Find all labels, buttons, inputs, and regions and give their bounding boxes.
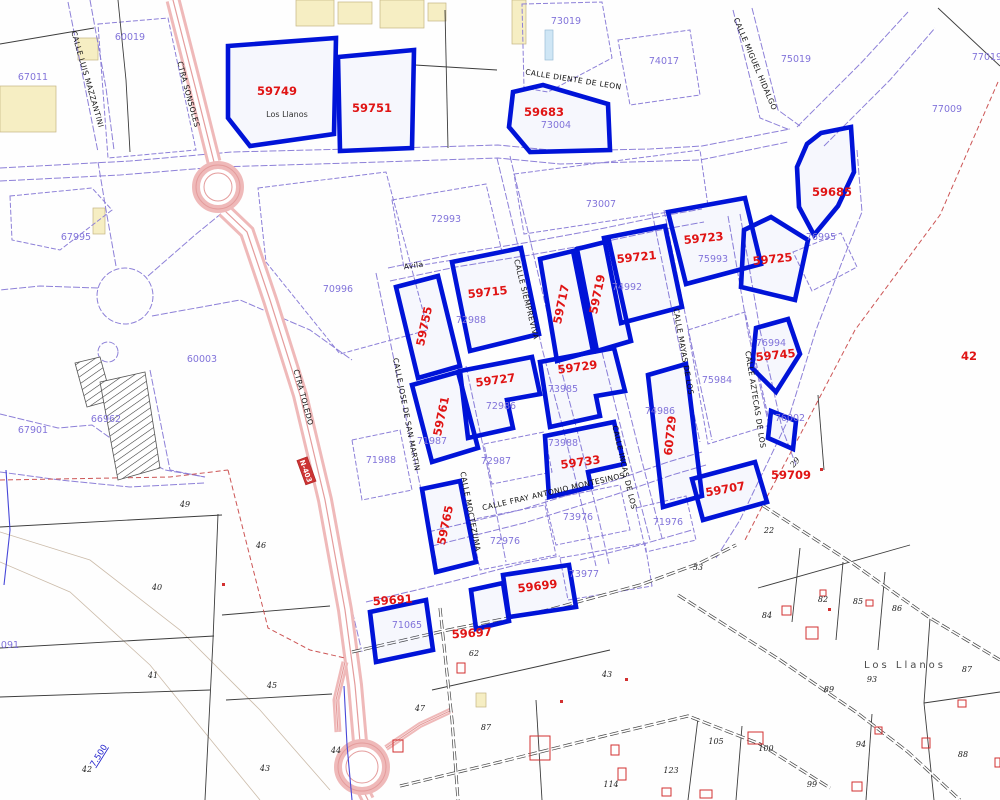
- street-line: [148, 208, 228, 276]
- building-red: [662, 788, 671, 796]
- parcel-number-73007: 73007: [586, 199, 616, 210]
- parcel-number-72993: 72993: [431, 214, 461, 225]
- building-yellow: [380, 0, 424, 28]
- road-badges-layer: N-4037.500: [89, 457, 316, 769]
- rural-number-40: 40: [151, 583, 162, 592]
- rural-number-99: 99: [807, 780, 817, 789]
- rural-number-45: 45: [266, 681, 277, 690]
- parcel-number-76994: 76994: [756, 338, 786, 349]
- parcel-number-74017: 74017: [649, 56, 679, 67]
- building-red: [866, 600, 873, 606]
- parcel-boundary: [0, 636, 214, 648]
- parcel-boundary: [818, 395, 824, 470]
- parcel-59727[interactable]: [460, 357, 540, 438]
- roundabout-outline: [98, 342, 118, 362]
- parcel-number-72988: 72988: [456, 315, 486, 326]
- parcel-boundary: [536, 700, 542, 800]
- parcel-number-72987: 72987: [481, 456, 511, 467]
- building-red: [700, 790, 712, 798]
- parcel-number-75984: 75984: [702, 375, 732, 386]
- rural-number-41: 41: [147, 671, 158, 680]
- building-red: [995, 758, 1000, 767]
- parcel-number-74986: 74986: [645, 406, 675, 417]
- building-yellow: [93, 208, 105, 234]
- parcel-boundary: [118, 0, 130, 152]
- parcel-boundary: [0, 690, 210, 697]
- parcel-number-66962: 66962: [91, 414, 121, 425]
- rural-number-93: 93: [867, 675, 877, 684]
- building-yellow: [338, 2, 372, 24]
- rural-number-62: 62: [469, 649, 479, 658]
- building-cyan: [545, 30, 553, 60]
- parcel-number-71065: 71065: [392, 620, 422, 631]
- parcel-number-70996: 70996: [323, 284, 353, 295]
- red-mark: [222, 583, 225, 586]
- parcel-number-76002: 76002: [775, 413, 805, 424]
- rural-number-42: 42: [81, 765, 92, 774]
- parcel-number-73976: 73976: [563, 512, 593, 523]
- contours-layer: [0, 532, 330, 800]
- parcel-label-59683: 59683: [524, 105, 564, 119]
- building-yellow: [428, 3, 446, 21]
- parcel-number-60019: 60019: [115, 32, 145, 43]
- rural-number-100: 100: [758, 744, 773, 753]
- place-label-los-llanos-0: Los Llanos: [266, 110, 308, 119]
- cadastral-map-viewport[interactable]: N-4037.500 59749597515968359685597235972…: [0, 0, 1000, 800]
- rural-number-86: 86: [892, 604, 902, 613]
- rural-number-114: 114: [603, 780, 618, 789]
- city-block-outline: [618, 30, 700, 105]
- rural-number-53: 53: [693, 563, 703, 572]
- building-yellow: [512, 0, 526, 44]
- parcel-label-59749: 59749: [257, 84, 297, 98]
- parcel-number-71988: 71988: [366, 455, 396, 466]
- stream-line: [4, 470, 10, 585]
- parcel-number-74992: 74992: [612, 282, 642, 293]
- parcel-number-76995: 76995: [806, 232, 836, 243]
- red-mark: [820, 468, 823, 471]
- red-mark: [560, 700, 563, 703]
- cadastral-map[interactable]: N-4037.500 59749597515968359685597235972…: [0, 0, 1000, 800]
- building-red: [457, 663, 465, 673]
- parcel-number-67995: 67995: [61, 232, 91, 243]
- building-red: [530, 736, 550, 760]
- parcel-label-59697: 59697: [451, 625, 492, 642]
- parcel-boundary: [836, 562, 843, 640]
- parcel-number-67901: 67901: [18, 425, 48, 436]
- contour-line: [0, 532, 330, 790]
- rural-number-94: 94: [856, 740, 866, 749]
- parcel-boundary: [222, 606, 330, 615]
- building-red: [806, 627, 818, 639]
- rural-number-105: 105: [708, 737, 723, 746]
- parcel-59691[interactable]: [370, 600, 433, 662]
- parcel-label-59709: 59709: [771, 468, 811, 482]
- parcel-59685[interactable]: [797, 127, 854, 235]
- building-red: [958, 700, 966, 707]
- street-line: [152, 300, 352, 360]
- rural-number-82: 82: [818, 595, 828, 604]
- red-mark: [828, 608, 831, 611]
- parcel-number-73985: 73985: [548, 384, 578, 395]
- parcel-number-60003: 60003: [187, 354, 217, 365]
- contour-line: [0, 562, 260, 800]
- rural-number-123: 123: [663, 766, 678, 775]
- parcel-boundary: [792, 548, 800, 622]
- parcel-number-71976: 71976: [653, 517, 683, 528]
- rural-number-43: 43: [259, 764, 270, 773]
- parcel-boundary: [445, 10, 448, 148]
- place-label-los-llanos-1: Los Llanos: [864, 660, 946, 671]
- street-line: [0, 472, 205, 487]
- parcel-number-73977: 73977: [569, 569, 599, 580]
- parcel-boundary: [415, 65, 497, 70]
- parcel-number-72976: 72976: [490, 536, 520, 547]
- hatched-area: [100, 372, 160, 480]
- streams-layer: [4, 470, 352, 800]
- rural-track: [678, 595, 960, 800]
- building-yellow: [296, 0, 334, 26]
- building-red: [852, 782, 862, 791]
- rural-number-49: 49: [179, 500, 190, 509]
- parcel-label-59691: 59691: [372, 592, 413, 609]
- parcel-number-75993: 75993: [698, 254, 728, 265]
- building-red: [611, 745, 619, 755]
- rural-number-88: 88: [958, 750, 968, 759]
- rural-number-85: 85: [853, 597, 863, 606]
- parcel-number-73988: 73988: [548, 438, 578, 449]
- rural-number-46: 46: [255, 541, 266, 550]
- parcel-number-73019: 73019: [551, 16, 581, 27]
- parcel-label-59751: 59751: [352, 101, 392, 115]
- parcel-number-77009: 77009: [932, 104, 962, 115]
- street-name-avila: Avila: [403, 260, 424, 272]
- parcel-label-59685: 59685: [812, 185, 852, 199]
- parcel-boundary: [226, 694, 332, 700]
- parcel-number-71987: 71987: [417, 436, 447, 447]
- parcel-boundary: [866, 714, 872, 800]
- rural-number-43: 43: [601, 670, 612, 679]
- parcel-boundary: [924, 692, 1000, 703]
- street-line: [0, 286, 98, 290]
- parcel-label-42: 42: [961, 349, 977, 363]
- rural-number-87: 87: [481, 723, 492, 732]
- red-mark: [625, 678, 628, 681]
- rural-number-89: 89: [824, 685, 834, 694]
- parcel-number-091: 091: [1, 640, 19, 651]
- rural-number-87: 87: [962, 665, 973, 674]
- building-yellow: [476, 693, 486, 707]
- rural-number-47: 47: [414, 704, 426, 713]
- building-red: [782, 606, 791, 615]
- parcel-number-72986: 72986: [486, 401, 516, 412]
- parcel-boundary: [432, 650, 610, 690]
- parcel-boundary: [0, 515, 222, 527]
- rural-number-84: 84: [762, 611, 772, 620]
- parcel-number-75019: 75019: [781, 54, 811, 65]
- rural-number-44: 44: [330, 746, 341, 755]
- building-red: [618, 768, 626, 780]
- building-yellow: [0, 86, 56, 132]
- parcel-number-67011: 67011: [18, 72, 48, 83]
- parcel-number-77019: 77019: [972, 52, 1000, 63]
- rural-number-22: 22: [763, 526, 774, 535]
- parcel-boundary: [688, 718, 698, 800]
- parcel-number-73004: 73004: [541, 120, 571, 131]
- street-line: [797, 12, 908, 127]
- roundabout-outline: [97, 268, 153, 324]
